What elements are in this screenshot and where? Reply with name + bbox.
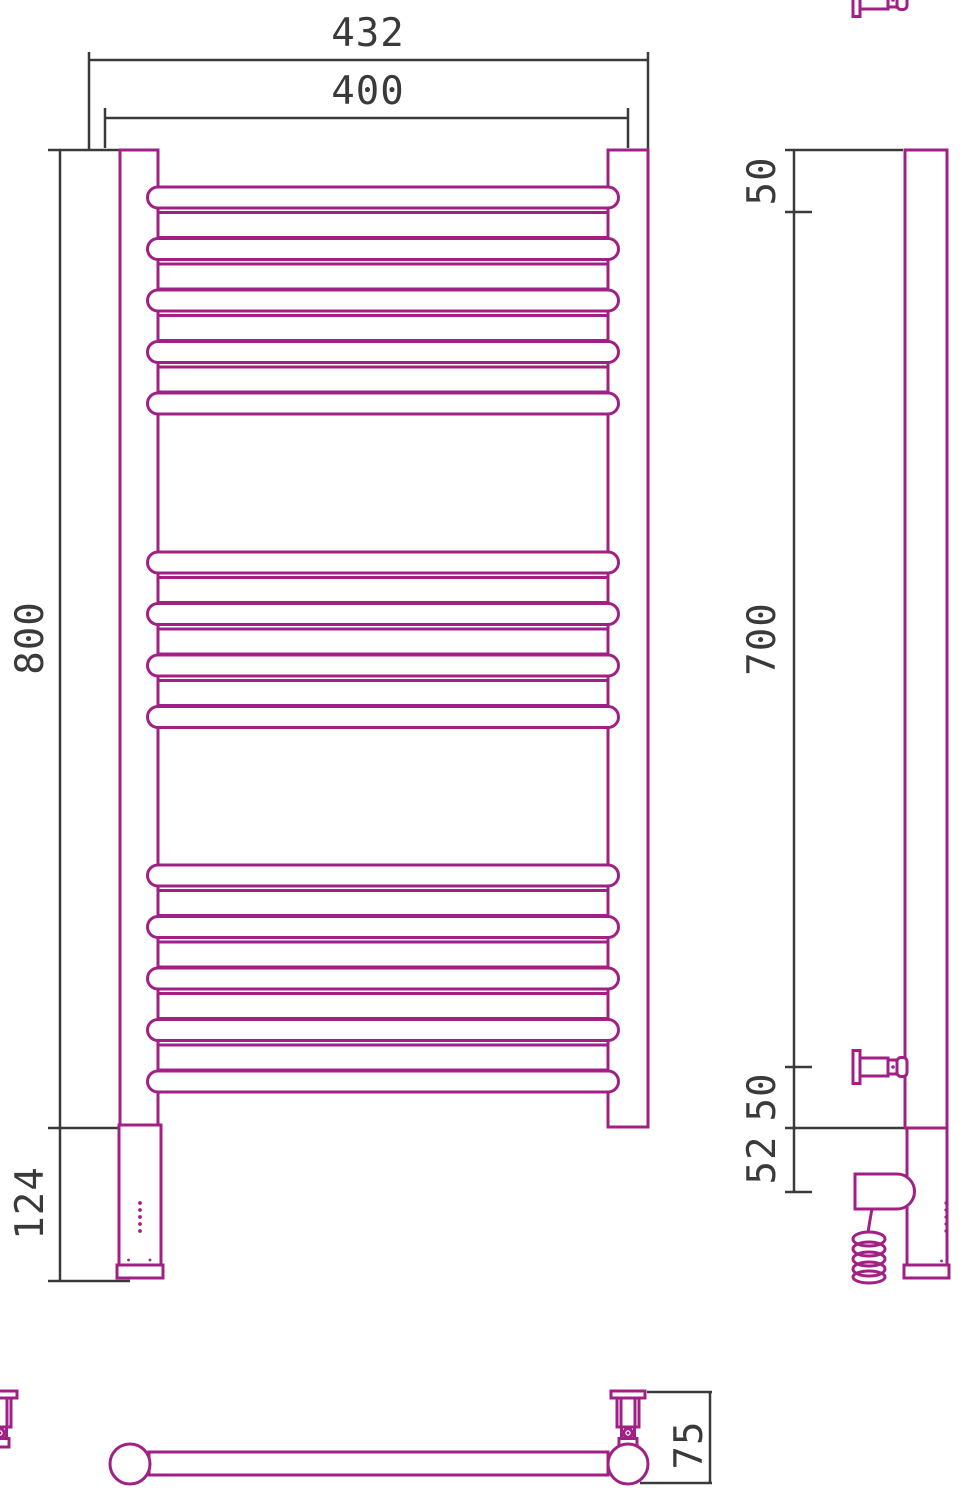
- heater-connection-housing: [855, 1174, 915, 1209]
- bottom-cap-front: [117, 1265, 163, 1278]
- dim-400-label: 400: [331, 69, 404, 114]
- bracket-top-view: [0, 1391, 17, 1447]
- dimension-depth: 75: [640, 1392, 712, 1483]
- left-collector-circle: [110, 1444, 150, 1484]
- tube-capsule: [148, 655, 619, 676]
- tube-plain: [158, 578, 608, 603]
- heater-box-front: [117, 1125, 163, 1278]
- tube-plain: [158, 629, 608, 654]
- dim-700-label: 700: [740, 602, 785, 675]
- tube-plain: [158, 681, 608, 706]
- tube-plain: [158, 994, 608, 1019]
- dim-432-label: 432: [331, 11, 404, 56]
- dim-800-label: 800: [8, 601, 53, 674]
- power-cord-coil: [853, 1209, 885, 1283]
- side-view: 50 700 50 52: [740, 0, 949, 1283]
- collector-side: [905, 150, 947, 1128]
- bracket-top-view-right: [611, 1391, 645, 1447]
- tube-capsule: [148, 342, 619, 363]
- tube-plain: [158, 264, 608, 289]
- screw-dot-left: [127, 1259, 130, 1262]
- crossbar-tubes: [148, 187, 619, 1092]
- dim-50-bottom-label: 50: [740, 1073, 785, 1122]
- tube-plain: [158, 1045, 608, 1070]
- wall-bracket: [853, 0, 907, 17]
- tube-capsule: [148, 865, 619, 886]
- tube-bottom-view: [149, 1452, 608, 1475]
- tube-capsule: [148, 1071, 619, 1092]
- front-view: 432 400 800 124: [8, 11, 648, 1281]
- tube-capsule: [148, 707, 619, 728]
- towel-rail-drawing: 432 400 800 124: [0, 0, 964, 1500]
- bottom-cap-side: [904, 1265, 949, 1278]
- dimension-height: 800 124: [8, 150, 130, 1281]
- tube-plain: [158, 316, 608, 341]
- bottom-view: 75: [0, 1391, 712, 1484]
- tube-capsule: [148, 1020, 619, 1041]
- dimension-axis-width: 400: [105, 69, 628, 148]
- tube-plain: [158, 891, 608, 916]
- tube-capsule: [148, 604, 619, 625]
- tube-plain: [158, 367, 608, 392]
- dim-75-label: 75: [667, 1421, 712, 1470]
- tube-plain: [158, 942, 608, 967]
- dim-124-label: 124: [8, 1166, 53, 1239]
- right-collector-circle: [608, 1444, 648, 1484]
- tube-capsule: [148, 552, 619, 573]
- tube-capsule: [148, 187, 619, 208]
- dimension-side: 50 700 50 52: [740, 150, 905, 1192]
- tube-capsule: [148, 239, 619, 260]
- screw-dot-right: [149, 1259, 152, 1262]
- tube-plain: [158, 213, 608, 238]
- dim-52-label: 52: [740, 1136, 785, 1185]
- tube-capsule: [148, 968, 619, 989]
- tube-capsule: [148, 290, 619, 311]
- wall-bracket-bottom: [853, 1051, 907, 1084]
- technical-drawing-canvas: 432 400 800 124: [0, 0, 964, 1500]
- tube-capsule: [148, 393, 619, 414]
- tube-capsule: [148, 917, 619, 938]
- dim-50-top-label: 50: [740, 157, 785, 206]
